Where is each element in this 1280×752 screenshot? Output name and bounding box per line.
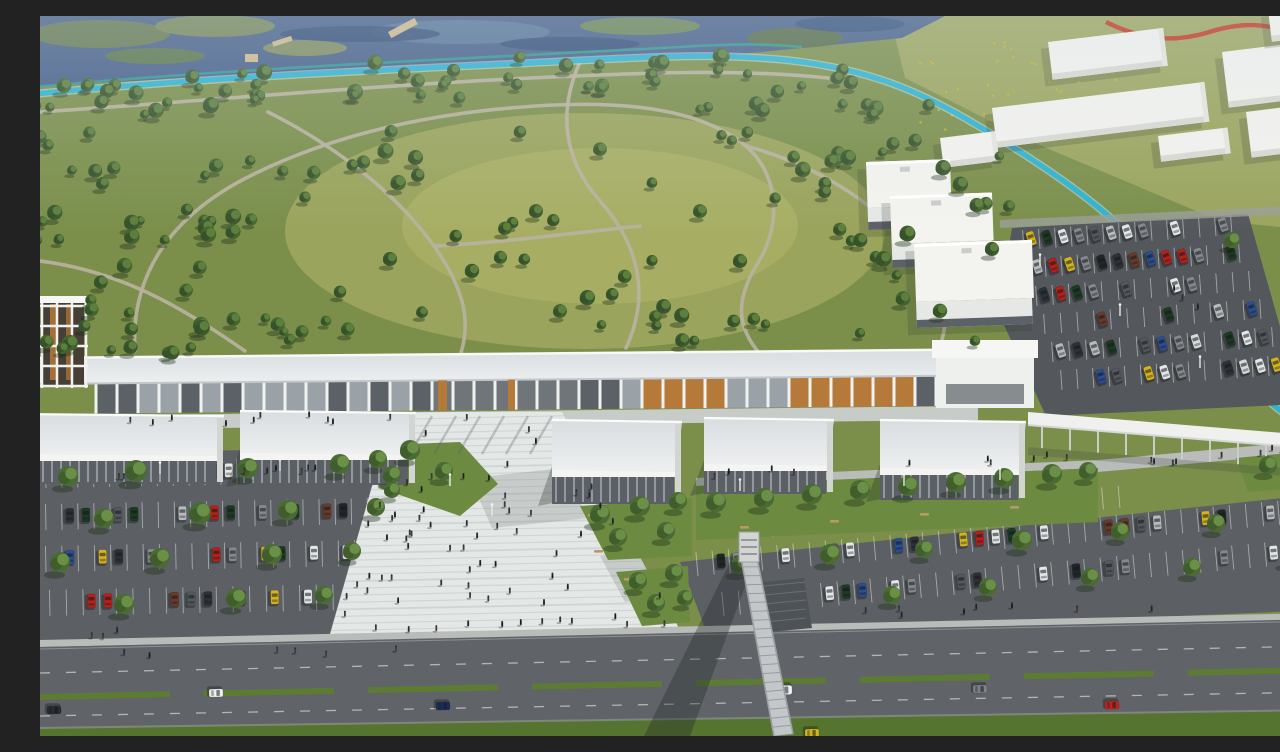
car (101, 593, 112, 609)
car (972, 531, 984, 548)
car (301, 589, 312, 605)
car (1103, 698, 1119, 709)
car (224, 505, 235, 521)
car (1069, 563, 1081, 580)
car (268, 590, 279, 606)
car (1266, 545, 1278, 562)
car (1263, 505, 1275, 522)
car (63, 508, 74, 524)
car (168, 592, 179, 608)
car (207, 686, 223, 697)
car (988, 529, 1000, 546)
car (1102, 560, 1114, 577)
car (714, 553, 726, 570)
car (954, 574, 966, 591)
car (839, 584, 851, 601)
car (971, 682, 987, 693)
car (176, 506, 187, 522)
car (201, 591, 212, 607)
car (226, 547, 237, 563)
rendering-canvas (40, 16, 1280, 736)
car (336, 503, 347, 519)
car (1217, 550, 1229, 567)
car (843, 542, 855, 559)
car (1118, 559, 1130, 576)
car (84, 594, 95, 610)
car (1150, 515, 1162, 532)
car (1037, 525, 1049, 542)
car (855, 583, 867, 600)
car (803, 726, 819, 736)
car (307, 546, 318, 562)
car (891, 538, 903, 555)
car (96, 550, 107, 566)
car (1134, 516, 1146, 533)
car (905, 578, 917, 595)
car (127, 507, 138, 523)
car (778, 548, 790, 565)
aerial-architectural-rendering (40, 16, 1280, 736)
car (256, 505, 267, 521)
car (1036, 566, 1048, 583)
car (320, 504, 331, 520)
car (184, 592, 195, 608)
car (45, 703, 61, 714)
car (956, 532, 968, 549)
car (434, 699, 450, 710)
car (79, 508, 90, 524)
pavilion-2 (538, 420, 682, 506)
car (822, 586, 834, 603)
car (112, 549, 123, 565)
car (210, 547, 221, 563)
